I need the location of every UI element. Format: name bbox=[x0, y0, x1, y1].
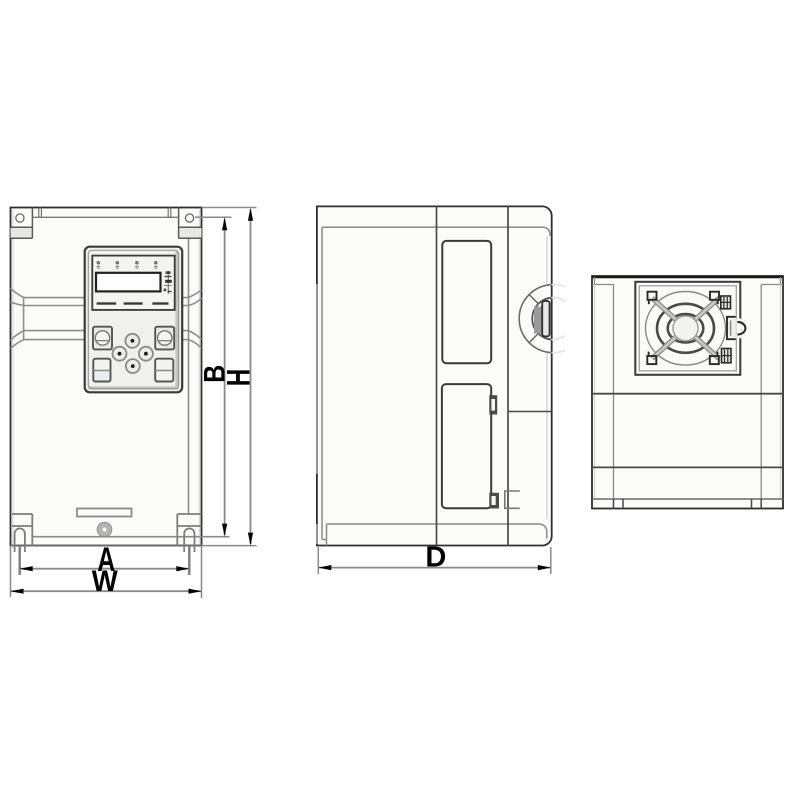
svg-text:W: W bbox=[92, 565, 119, 598]
svg-text:H: H bbox=[221, 369, 257, 387]
svg-text:D: D bbox=[425, 542, 446, 574]
